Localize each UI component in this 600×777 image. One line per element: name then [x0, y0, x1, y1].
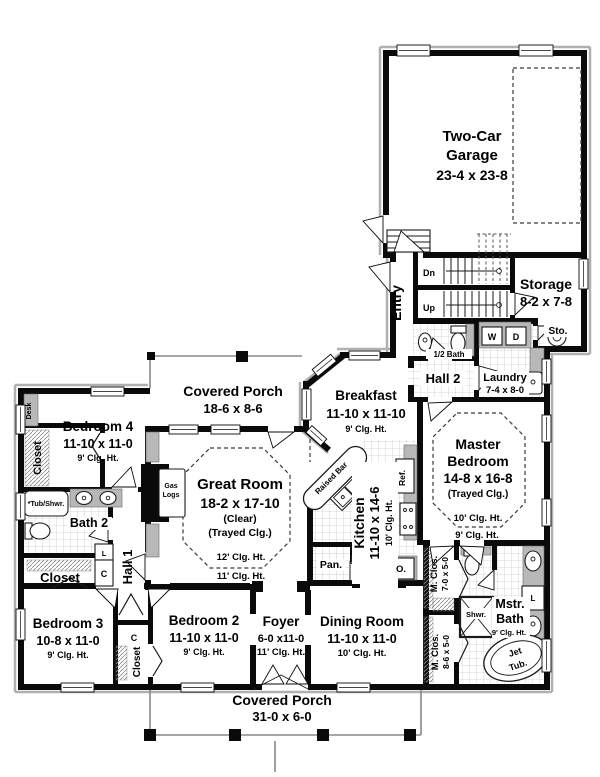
garage-label2: Garage: [446, 147, 498, 164]
entry-label: Entry: [388, 285, 404, 321]
sto-label: Sto.: [549, 326, 568, 337]
bedroom3-label: Bedroom 3: [33, 616, 104, 631]
kitchen-dims: 11-10 x 14-6: [367, 486, 382, 559]
great-room-clg2: 11' Clg. Ht.: [217, 571, 265, 582]
porch-post: [236, 351, 248, 362]
stairs-up-label: Up: [423, 303, 435, 313]
mclos1-label: M. Clos.: [429, 556, 440, 592]
laundry-dims: 7-4 x 8-0: [486, 385, 524, 396]
great-room-label: Great Room: [197, 476, 283, 493]
dryer-label: D: [513, 332, 520, 342]
breakfast-label: Breakfast: [335, 388, 397, 403]
bedroom3-clg: 9' Clg. Ht.: [47, 650, 88, 660]
mclos1-dims: 7-0 x 5-0: [440, 557, 450, 591]
great-room-note2: (Trayed Clg.): [208, 527, 272, 539]
window: [211, 425, 240, 434]
window: [542, 415, 551, 442]
floor-plan-drawing: Two-Car Garage 23-4 x 23-8 Storage 8-2 x…: [0, 0, 600, 777]
master-dims: 14-8 x 16-8: [443, 471, 513, 486]
desk-label: Desk: [26, 403, 33, 420]
bath2-label: Bath 2: [70, 516, 108, 530]
porch-top-label: Covered Porch: [183, 383, 283, 399]
bedroom2-label: Bedroom 2: [169, 613, 240, 628]
mstr-bath-clg: 9' Clg. Ht.: [492, 628, 526, 637]
window: [542, 359, 551, 384]
shower-label: Shwr.: [466, 610, 486, 619]
porch-door: [268, 432, 294, 448]
window: [579, 259, 588, 289]
laundry-label: Laundry: [483, 372, 527, 384]
master-clg1: 10' Clg. Ht.: [454, 513, 503, 524]
great-room-note1: (Clear): [223, 513, 256, 525]
kitchen-clg: 10' Clg. Ht.: [384, 500, 394, 546]
hall1-label: Hall 1: [120, 550, 135, 585]
bedroom2-dims: 11-10 x 11-0: [169, 631, 239, 645]
bedroom2-closet-bifold: [153, 646, 162, 676]
pantry-label: Pan.: [320, 559, 342, 571]
kitchen-label: Kitchen: [351, 497, 367, 548]
breakfast-dims: 11-10 x 11-10: [326, 406, 406, 421]
dining-clg: 10' Clg. Ht.: [338, 648, 387, 659]
entry-exterior-door: [369, 262, 390, 292]
bedroom2-clg: 9' Clg. Ht.: [183, 647, 224, 657]
mstr-bath-label2: Bath: [496, 612, 524, 626]
linen-label: L: [102, 549, 107, 558]
porch-post: [317, 729, 329, 741]
garage-label: Two-Car: [443, 128, 502, 145]
bedroom4-label: Bedroom 4: [63, 419, 134, 434]
floor-plan-page: Two-Car Garage 23-4 x 23-8 Storage 8-2 x…: [0, 0, 600, 777]
window: [181, 683, 214, 692]
great-room-clg1: 12' Clg. Ht.: [217, 552, 266, 563]
fridge-label: Ref.: [397, 470, 407, 486]
front-door-left: [262, 665, 284, 684]
mclos2-label: M. Clos.: [430, 634, 441, 670]
bedroom4-dims: 11-10 x 11-0: [63, 437, 133, 451]
dining-label: Dining Room: [320, 614, 404, 629]
oven-label: O.: [396, 564, 406, 575]
master-clg2: 9' Clg. Ht.: [455, 530, 498, 541]
porch-bottom-dims: 31-0 x 6-0: [252, 709, 311, 724]
foyer-dims: 6-0 x11-0: [258, 633, 304, 645]
garage-dims: 23-4 x 23-8: [436, 167, 508, 183]
foyer-clg: 11' Clg. Ht.: [257, 647, 305, 658]
window: [337, 683, 370, 692]
window: [16, 405, 25, 434]
window: [16, 609, 25, 640]
bedroom2-closet-label: Closet: [132, 646, 143, 677]
master-note: (Trayed Clg.): [448, 489, 509, 500]
c2-closet-label: C: [131, 633, 138, 643]
porch-top-dims: 18-6 x 8-6: [203, 401, 262, 416]
gas-logs-label1: Gas: [164, 483, 177, 490]
hall-closet-label: Closet: [40, 570, 80, 585]
window: [519, 45, 553, 56]
c-closet-bifold: [119, 594, 143, 615]
master-label1: Master: [455, 436, 501, 452]
gas-logs-label2: Logs: [163, 492, 180, 499]
porch-post: [144, 729, 156, 741]
storage-dims: 8-2 x 7-8: [520, 294, 572, 309]
window: [542, 639, 551, 672]
porch-post: [229, 729, 241, 741]
stairs-dn-label: Dn: [423, 268, 435, 278]
window: [349, 351, 380, 360]
garage-service-door: [363, 216, 383, 243]
window: [16, 493, 25, 520]
window: [542, 499, 551, 526]
mclos2-dims: 8-6 x 5-0: [441, 635, 451, 669]
tub-shwr-label: *Tub/Shwr.: [28, 499, 65, 508]
storage-label: Storage: [520, 276, 572, 292]
window: [302, 389, 311, 420]
porch-post: [147, 352, 155, 360]
window: [91, 387, 124, 396]
porch-post: [404, 729, 416, 741]
bedroom4-door: [112, 467, 136, 487]
bedroom4-clg: 9' Clg. Ht.: [77, 453, 118, 463]
bedroom3-dims: 10-8 x 11-0: [36, 634, 99, 648]
bedroom2-door: [148, 589, 170, 608]
master-label2: Bedroom: [447, 453, 508, 469]
hall2-label: Hall 2: [426, 371, 461, 386]
front-door-right: [286, 665, 308, 684]
master-bedroom-door: [428, 402, 452, 421]
linen2-label: L: [531, 594, 536, 603]
half-bath-label: 1/2 Bath: [433, 350, 464, 359]
porch-bottom-label: Covered Porch: [232, 692, 332, 708]
breakfast-clg: 9' Clg. Ht.: [345, 424, 386, 434]
c-closet-label: C: [101, 569, 108, 579]
great-room-dims: 18-2 x 17-10: [200, 495, 280, 511]
window: [397, 45, 430, 56]
bedroom4-closet-label: Closet: [32, 441, 44, 475]
washer-label: W: [488, 332, 497, 342]
bedroom3-door: [96, 589, 118, 608]
window: [169, 425, 198, 434]
mstr-bath-label1: Mstr.: [495, 597, 524, 611]
foyer-label: Foyer: [263, 614, 301, 629]
window: [61, 683, 94, 692]
dining-dims: 11-10 x 11-0: [327, 632, 397, 646]
